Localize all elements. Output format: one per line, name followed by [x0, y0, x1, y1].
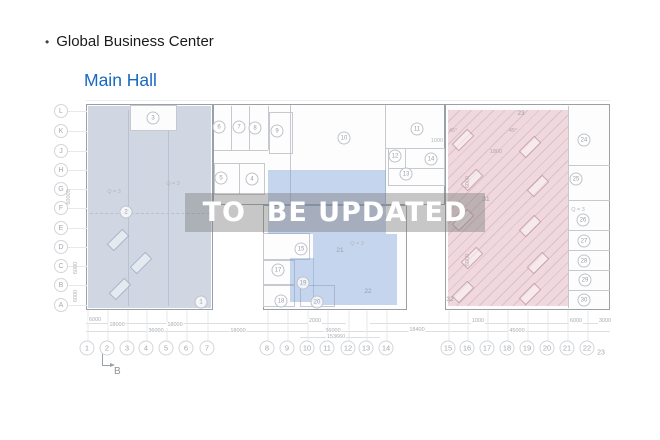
grid-col-label: 14: [379, 341, 394, 356]
dimension-label: 45000: [508, 328, 525, 334]
room-number: 29: [579, 274, 592, 287]
room-number: 23: [517, 111, 524, 118]
room-number: 13: [400, 168, 413, 181]
room-number: 2: [120, 206, 133, 219]
grid-col-label: 18: [500, 341, 515, 356]
page: • Global Business Center Main Hall: [0, 0, 660, 440]
section-marker-line: [102, 365, 110, 366]
dimension-label: 18400: [408, 327, 425, 333]
dimension-label-vertical: 60000: [66, 189, 72, 204]
room-number: 14: [425, 153, 438, 166]
room-number: 20: [311, 296, 324, 309]
grid-col-label: 21: [560, 341, 575, 356]
room-number: 10: [338, 132, 351, 145]
dimension-label: 36000: [147, 328, 164, 334]
plan-annotation: Q = 3: [107, 189, 121, 195]
dimension-label-vertical: 6000: [465, 254, 471, 266]
wall-segment: [568, 230, 610, 231]
room-number: 12: [389, 150, 402, 163]
plan-annotation: Q = 3: [166, 181, 180, 187]
dimension-label: 1000: [471, 318, 485, 324]
room-number: 7: [233, 121, 246, 134]
room-number: 28: [578, 255, 591, 268]
grid-col-label: 13: [359, 341, 374, 356]
dimension-label-vertical: 6000: [465, 176, 471, 188]
room-number: 30: [578, 294, 591, 307]
wall-segment: [214, 150, 268, 151]
dimension-label: 18000: [108, 322, 125, 328]
room-number: 4: [246, 173, 259, 186]
grid-row-label: D: [54, 240, 68, 254]
wall-segment: [405, 148, 406, 168]
grid-col-label: 17: [480, 341, 495, 356]
room-number: 5: [215, 172, 228, 185]
wall-segment: [568, 106, 569, 308]
wall-segment: [388, 168, 445, 169]
grid-col-label: 20: [540, 341, 555, 356]
wall-segment: [568, 290, 610, 291]
dimension-label: 2000: [308, 318, 322, 324]
grid-col-label: 19: [520, 341, 535, 356]
plan-annotation: 45°: [509, 128, 517, 134]
room-number: 18: [275, 295, 288, 308]
grid-col-label: 15: [441, 341, 456, 356]
grid-col-label: 9: [280, 341, 295, 356]
dimension-label: 18000: [229, 328, 246, 334]
wall-segment: [568, 250, 610, 251]
dimension-label: 153660: [326, 334, 346, 340]
top-dimension-line: [86, 100, 610, 101]
dimension-label: 6000: [569, 318, 583, 324]
grid-row-label: A: [54, 298, 68, 312]
room-number: 11: [411, 123, 424, 136]
dimension-label: 18000: [166, 322, 183, 328]
grid-row-label: C: [54, 259, 68, 273]
dimension-label: 3000: [598, 318, 612, 324]
grid-col-label: 22: [580, 341, 595, 356]
grid-col-label: 3: [120, 341, 135, 356]
grid-row-label: J: [54, 144, 68, 158]
grid-col-label: 11: [320, 341, 335, 356]
room-number: 25: [570, 173, 583, 186]
room-number: 24: [578, 134, 591, 147]
grid-col-label: 7: [200, 341, 215, 356]
grid-row-label: B: [54, 278, 68, 292]
grid-col-label: 5: [159, 341, 174, 356]
room-number: 22: [364, 289, 371, 296]
plan-annotation: Q = 3: [571, 207, 585, 213]
wall-segment: [568, 200, 610, 201]
room-number: 9: [271, 125, 284, 138]
room-number: 3: [147, 112, 160, 125]
grid-col-label: 10: [300, 341, 315, 356]
room-number: 21: [336, 248, 343, 255]
wall-segment: [239, 163, 240, 195]
room-number: 17: [272, 264, 285, 277]
plan-annotation: 45°: [449, 128, 457, 134]
room-number: 19: [297, 277, 310, 290]
grid-col-label: 16: [460, 341, 475, 356]
grid-col-label: 12: [341, 341, 356, 356]
dimension-label: 6000: [88, 317, 102, 323]
grid-col-label: 23: [595, 347, 608, 360]
grid-col-label: 4: [139, 341, 154, 356]
floor-plan: LKJHGFEDCBA 1234567891011121314151617181…: [0, 0, 660, 440]
dimension-label-vertical: 6000: [73, 290, 79, 302]
grid-row-label: L: [54, 104, 68, 118]
plan-annotation: 1000: [431, 138, 443, 144]
section-marker-label: B: [114, 366, 121, 377]
grid-row-label: K: [54, 124, 68, 138]
room-number: 15: [295, 243, 308, 256]
room-number: 1: [195, 296, 208, 309]
room-number: 8: [249, 122, 262, 135]
plan-annotation: Q = 3: [350, 241, 364, 247]
room-number: 26: [577, 214, 590, 227]
grid-col-label: 1: [80, 341, 95, 356]
room-number: 27: [578, 235, 591, 248]
room-number: 32: [446, 297, 453, 304]
grid-row-label: H: [54, 163, 68, 177]
dimension-label-vertical: 6000: [73, 262, 79, 274]
wall-segment: [568, 165, 610, 166]
grid-col-label: 6: [179, 341, 194, 356]
watermark-banner: TO BE UPDATED: [185, 193, 485, 232]
grid-col-label: 8: [260, 341, 275, 356]
plan-annotation: 1800: [490, 149, 502, 155]
room-number: 6: [213, 121, 226, 134]
grid-row-label: E: [54, 221, 68, 235]
wall-segment: [568, 270, 610, 271]
